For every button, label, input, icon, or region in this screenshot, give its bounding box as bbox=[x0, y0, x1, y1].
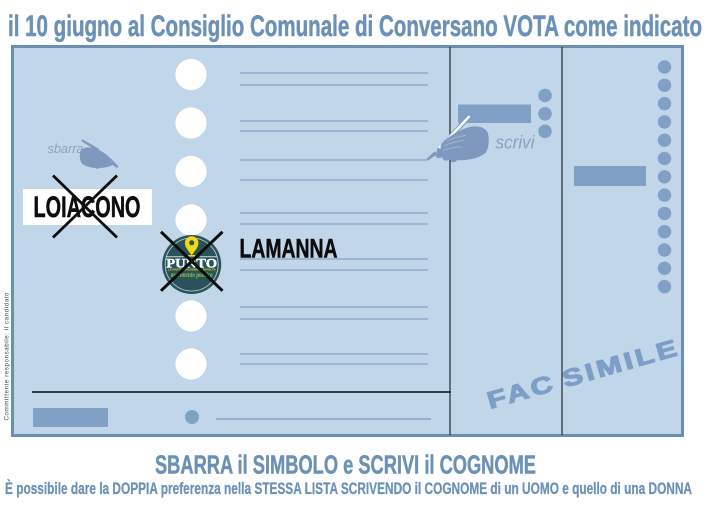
svg-text:SBARRA il SIMBOLO e SCRIVI il: SBARRA il SIMBOLO e SCRIVI il COGNOME bbox=[155, 450, 536, 480]
svg-text:scrivi: scrivi bbox=[496, 133, 536, 153]
svg-text:sbarra: sbarra bbox=[48, 141, 84, 156]
svg-text:Committente responsabile: il c: Committente responsabile: il candidato bbox=[4, 292, 11, 421]
svg-text:il 10 giugno al Consiglio Comu: il 10 giugno al Consiglio Comunale di Co… bbox=[8, 10, 702, 43]
svg-text:È possibile dare la DOPPIA pre: È possibile dare la DOPPIA preferenza ne… bbox=[5, 479, 692, 498]
svg-text:LAMANNA: LAMANNA bbox=[240, 234, 338, 264]
